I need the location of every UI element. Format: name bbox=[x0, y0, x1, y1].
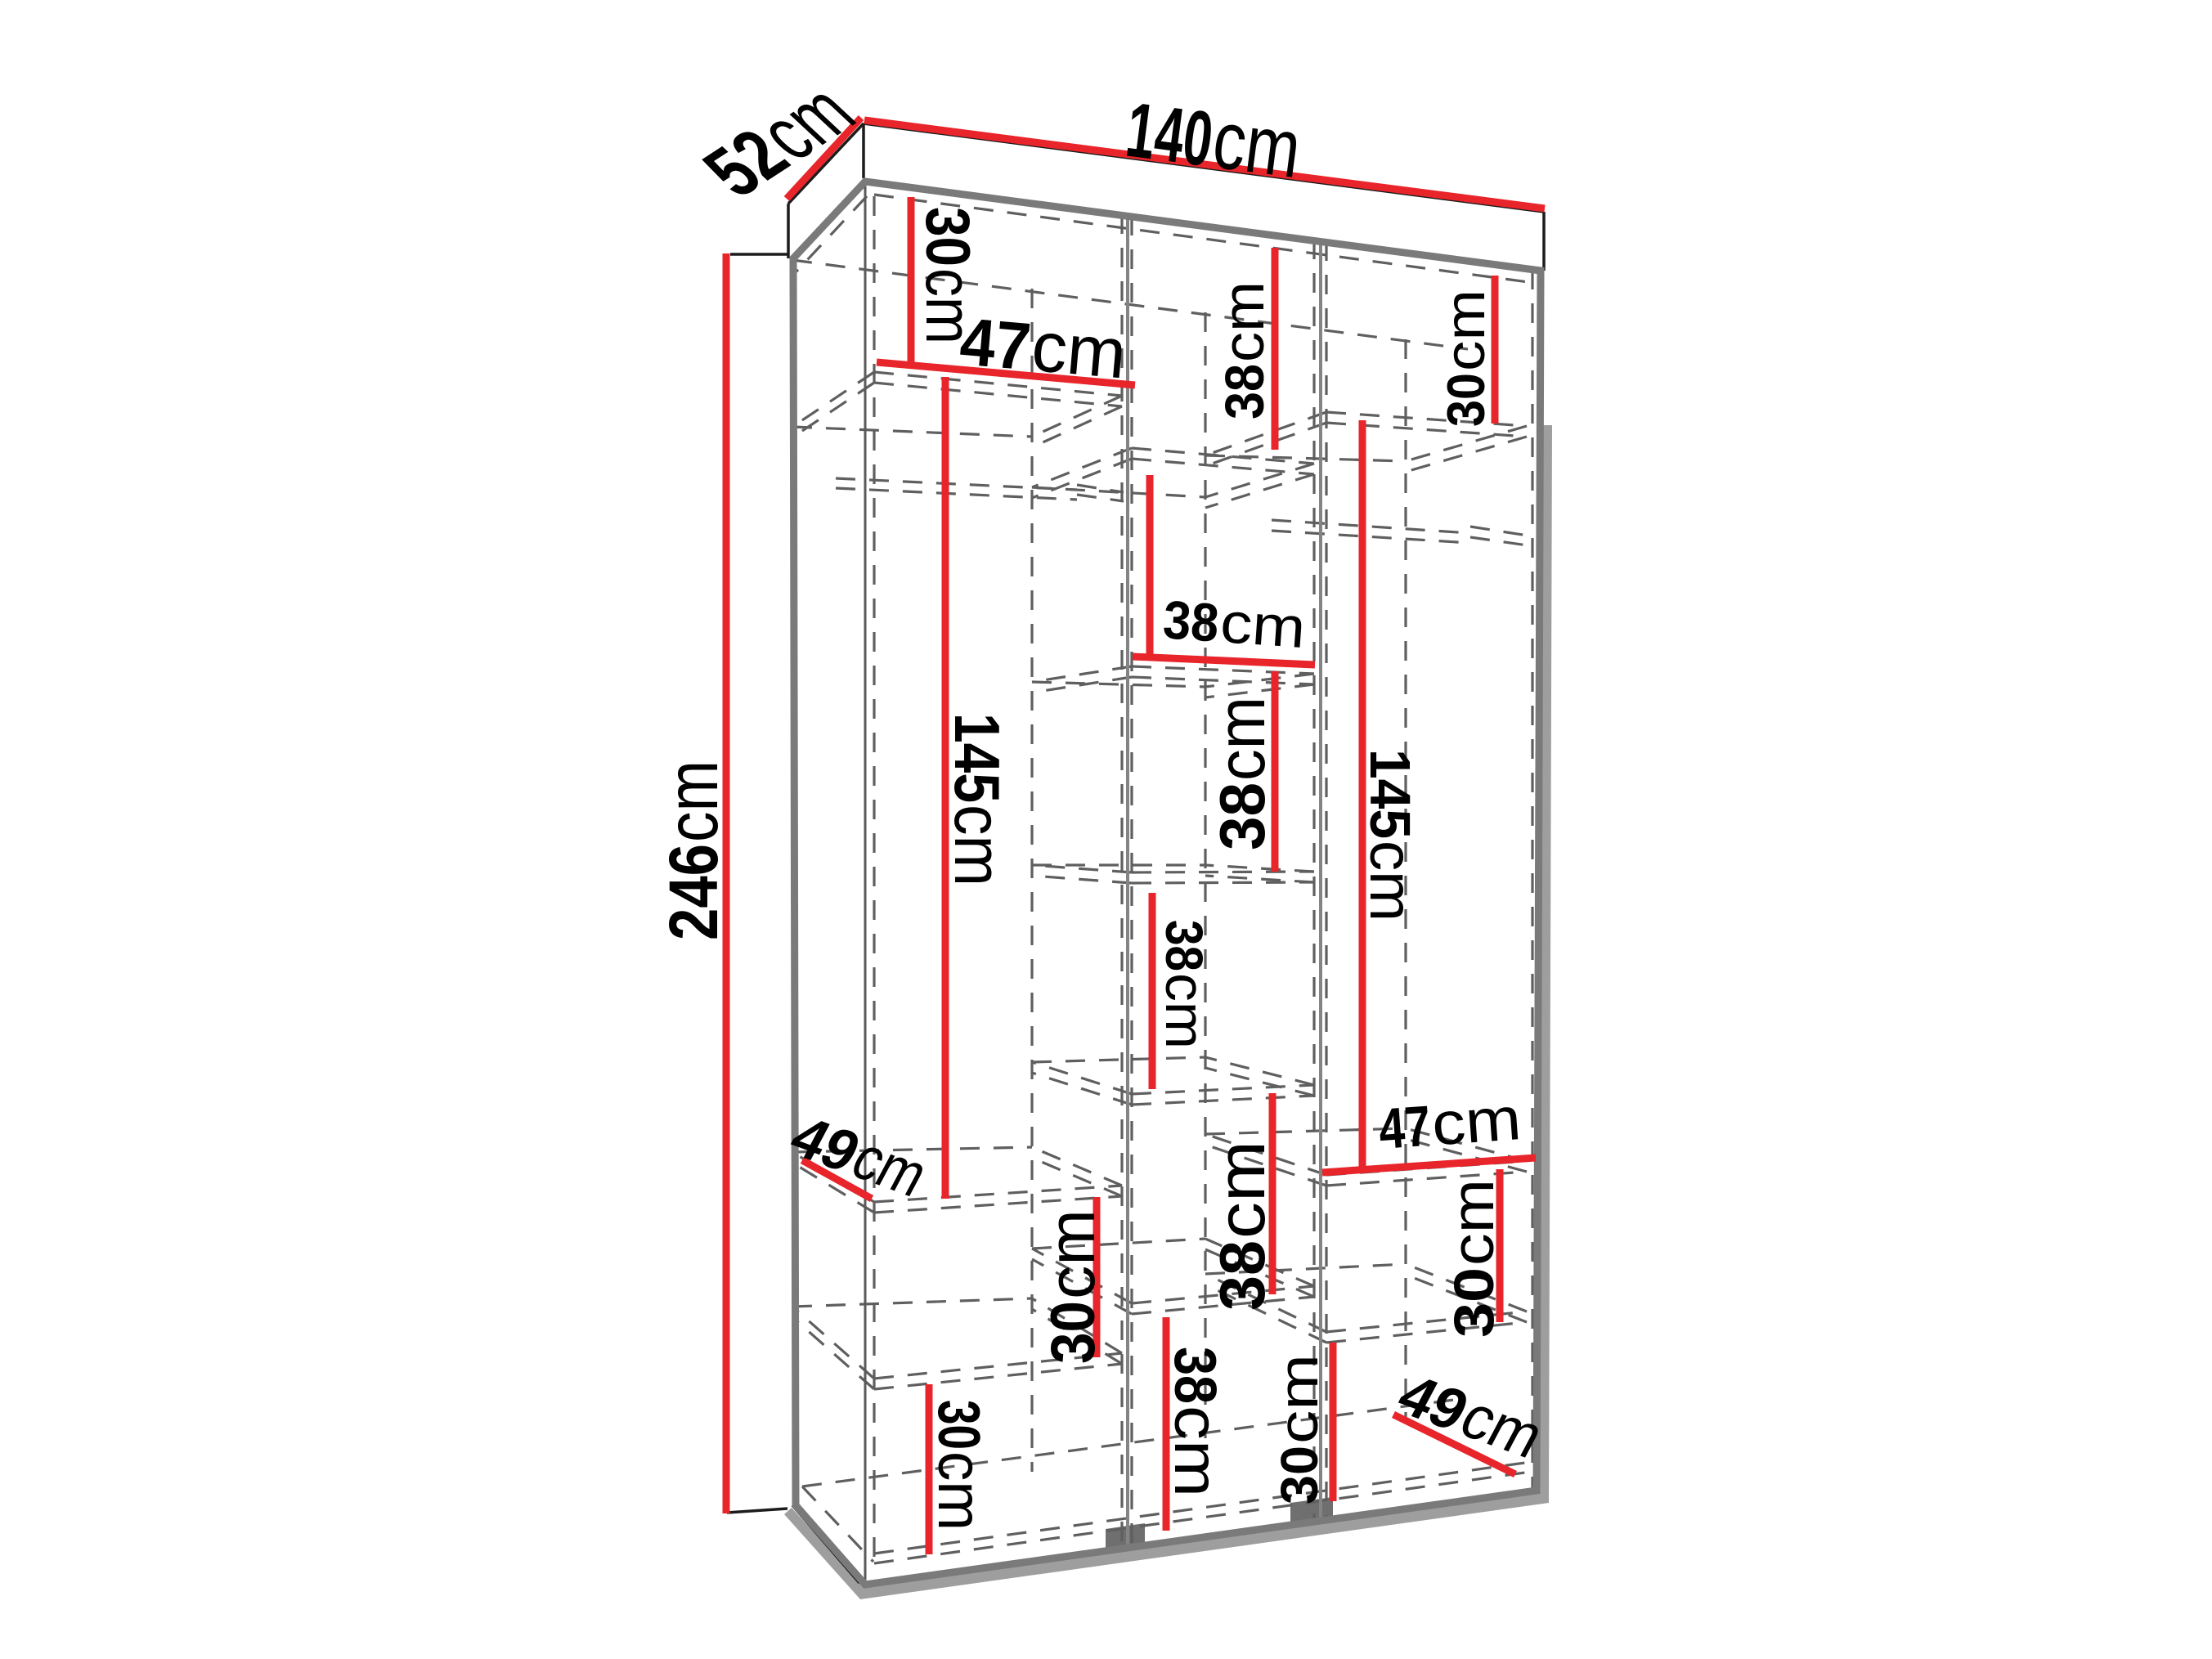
svg-text:30cm: 30cm bbox=[1434, 289, 1496, 427]
svg-text:38cm: 38cm bbox=[1203, 697, 1279, 850]
svg-text:47cm: 47cm bbox=[1376, 1084, 1523, 1162]
svg-text:38cm: 38cm bbox=[1161, 1347, 1231, 1497]
svg-text:30cm: 30cm bbox=[1440, 1179, 1506, 1338]
svg-text:38cm: 38cm bbox=[1154, 920, 1215, 1049]
svg-text:38cm: 38cm bbox=[1212, 281, 1276, 419]
svg-text:30cm: 30cm bbox=[925, 1400, 994, 1531]
svg-text:38cm: 38cm bbox=[1203, 1141, 1279, 1311]
svg-text:47cm: 47cm bbox=[957, 300, 1129, 393]
svg-text:246cm: 246cm bbox=[651, 760, 733, 940]
svg-text:38cm: 38cm bbox=[1161, 586, 1308, 660]
svg-text:145cm: 145cm bbox=[940, 713, 1016, 886]
svg-text:30cm: 30cm bbox=[1268, 1354, 1330, 1504]
svg-text:145cm: 145cm bbox=[1357, 749, 1425, 921]
svg-text:30cm: 30cm bbox=[1035, 1209, 1109, 1364]
